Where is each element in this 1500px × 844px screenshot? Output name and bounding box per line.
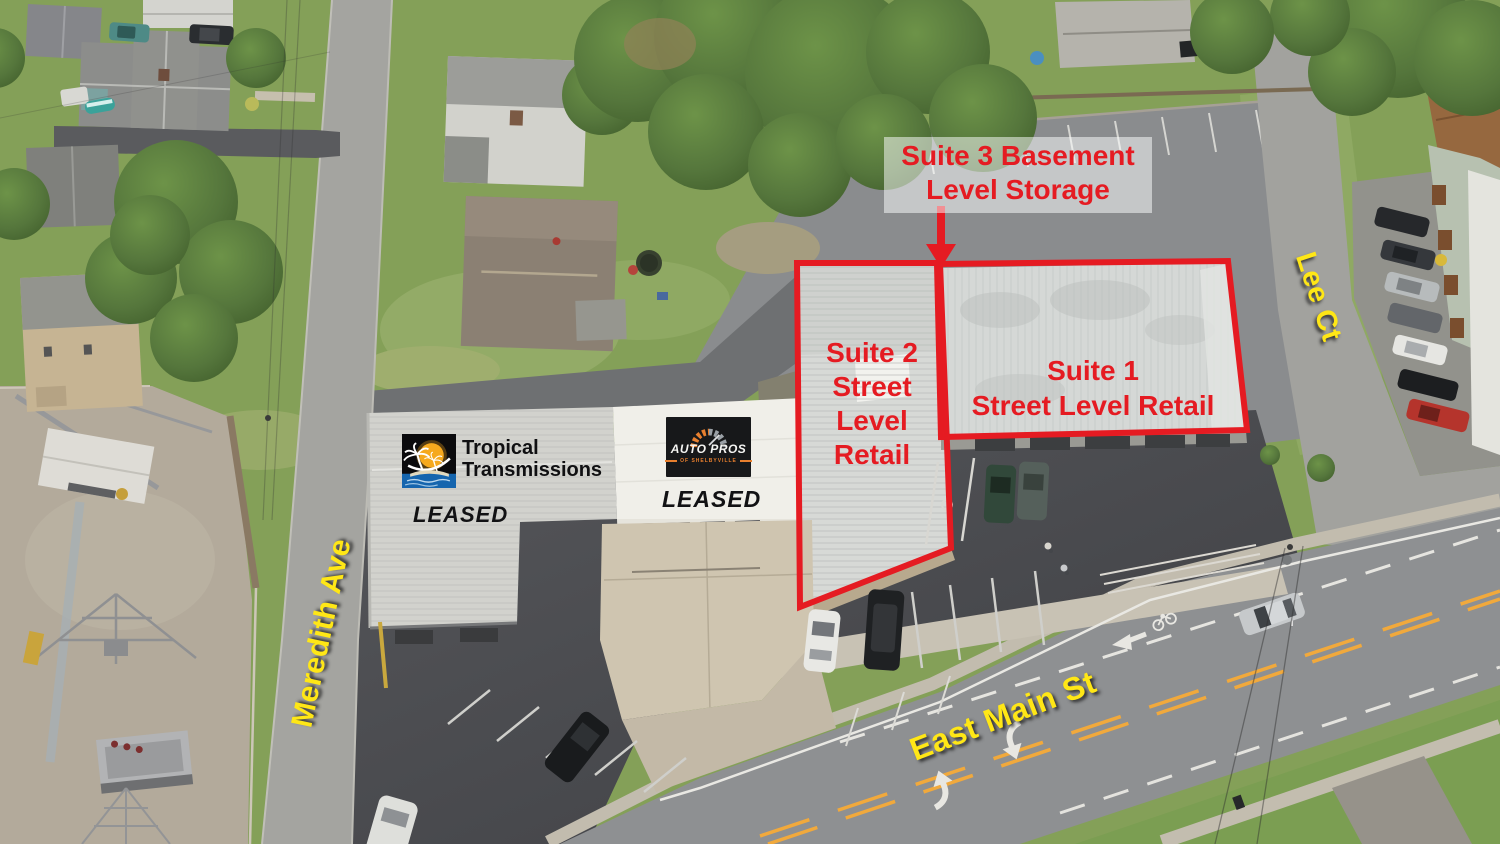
suite3-line2: Level Storage — [884, 173, 1152, 207]
suite1-line1: Suite 1 — [935, 353, 1251, 388]
auto-pros-subtitle-row: OF SHELBYVILLE — [662, 458, 755, 464]
auto-pros-logo: AUTO PROS OF SHELBYVILLE — [666, 417, 751, 477]
suite2-line1: Suite 2 — [799, 336, 945, 370]
auto-pros-name: AUTO PROS — [671, 443, 747, 455]
tropical-line1: Tropical — [462, 437, 602, 459]
aerial-site-photo: Suite 3 Basement Level Storage Suite 2 S… — [0, 0, 1500, 844]
suite2-label: Suite 2 Street Level Retail — [799, 336, 945, 472]
auto-pros-subtitle: OF SHELBYVILLE — [680, 458, 737, 464]
suite2-line4: Retail — [799, 438, 945, 472]
suite1-label: Suite 1 Street Level Retail — [935, 353, 1251, 423]
leased-label-right: LEASED — [662, 486, 761, 513]
dash-icon — [665, 460, 677, 462]
suite3-line1: Suite 3 Basement — [884, 139, 1152, 173]
power-substation — [0, 384, 256, 844]
suite2-line2: Street — [799, 370, 945, 404]
transformer — [96, 730, 193, 793]
tropical-transmissions-logo: Tropical Transmissions — [402, 434, 602, 488]
suite1-line2: Street Level Retail — [935, 388, 1251, 423]
dash-icon — [740, 460, 752, 462]
tropical-logo-text: Tropical Transmissions — [462, 437, 602, 481]
tropical-logo-icon — [402, 434, 456, 488]
suite2-line3: Level — [799, 404, 945, 438]
suite3-storage-label: Suite 3 Basement Level Storage — [884, 137, 1152, 213]
tropical-line2: Transmissions — [462, 459, 602, 481]
leased-label-left: LEASED — [413, 502, 508, 528]
